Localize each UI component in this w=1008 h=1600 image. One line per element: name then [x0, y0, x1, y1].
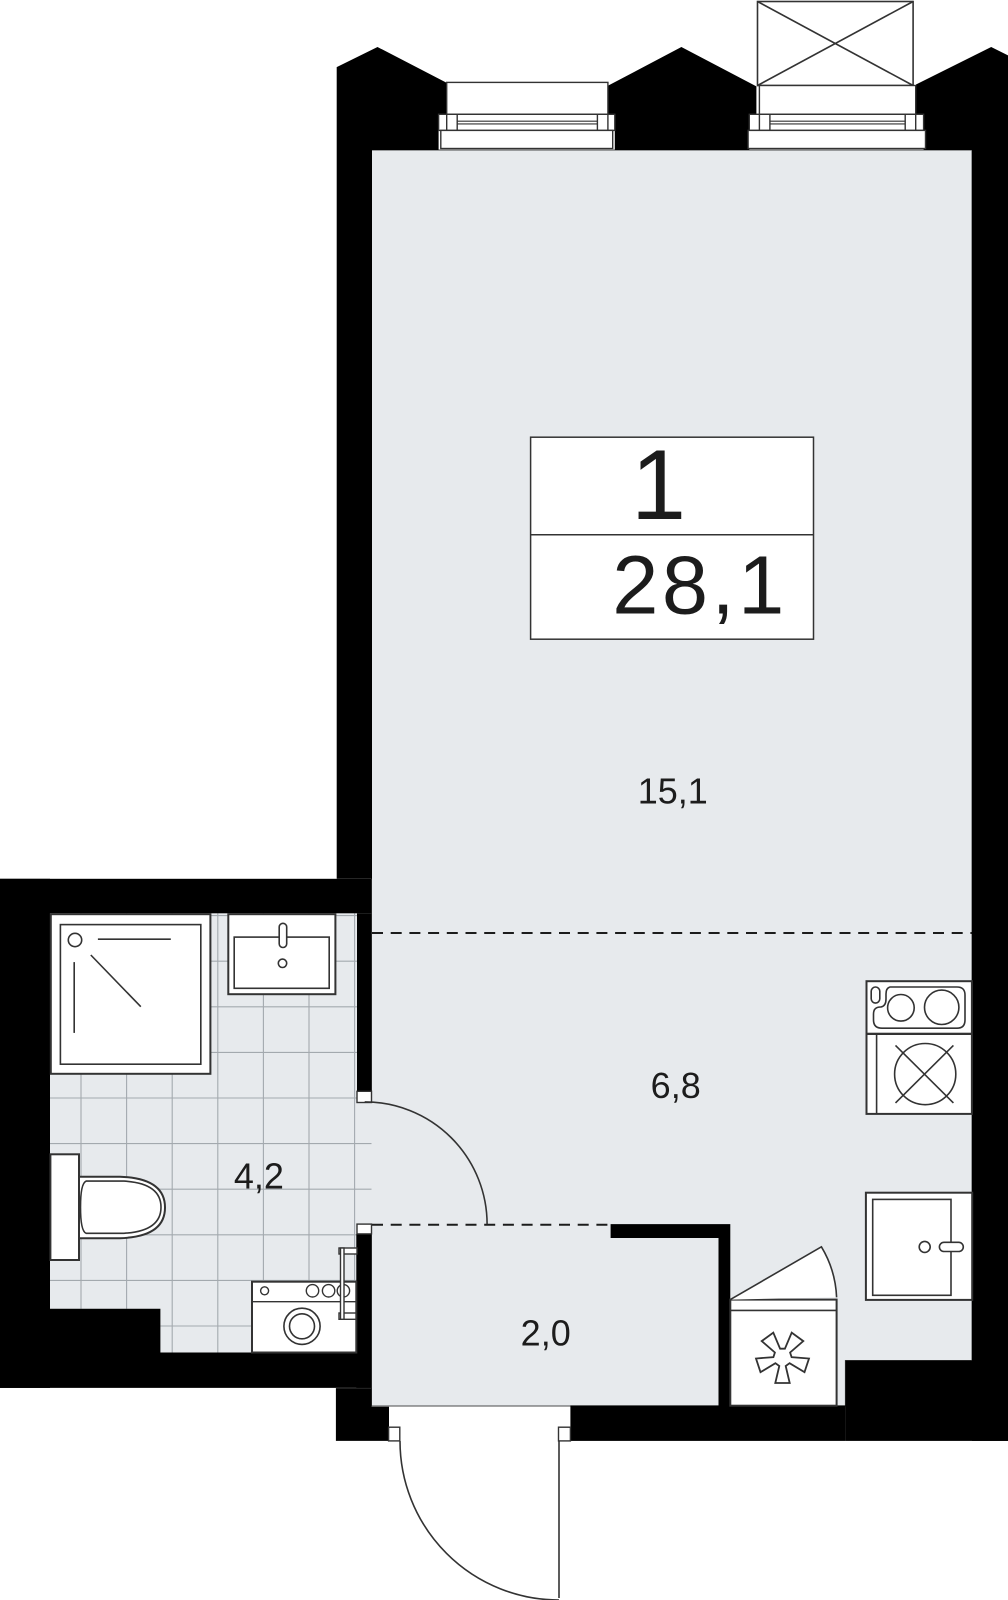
svg-text:28,1: 28,1 — [612, 539, 788, 632]
svg-text:4,2: 4,2 — [234, 1155, 284, 1196]
svg-text:2,0: 2,0 — [521, 1313, 571, 1354]
svg-text:1: 1 — [631, 429, 686, 540]
svg-text:6,8: 6,8 — [651, 1065, 701, 1106]
svg-text:15,1: 15,1 — [638, 771, 708, 812]
